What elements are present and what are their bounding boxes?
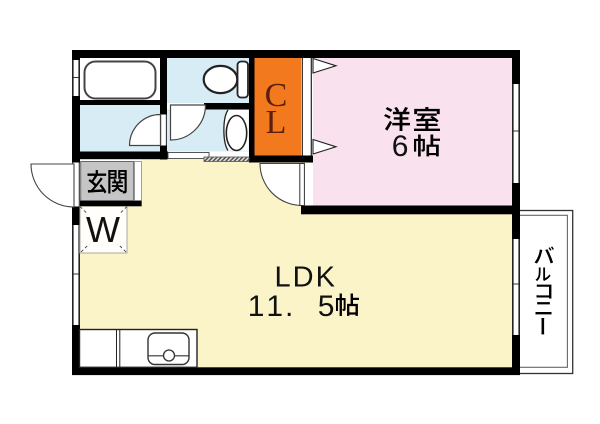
svg-text:L: L — [266, 104, 287, 141]
svg-text:1: 1 — [248, 290, 265, 323]
svg-text:1: 1 — [266, 290, 283, 323]
svg-text:.: . — [285, 290, 293, 323]
svg-text:LDK: LDK — [275, 262, 337, 294]
svg-text:5: 5 — [318, 290, 335, 323]
svg-text:W: W — [86, 209, 120, 250]
svg-text:6: 6 — [392, 130, 409, 163]
